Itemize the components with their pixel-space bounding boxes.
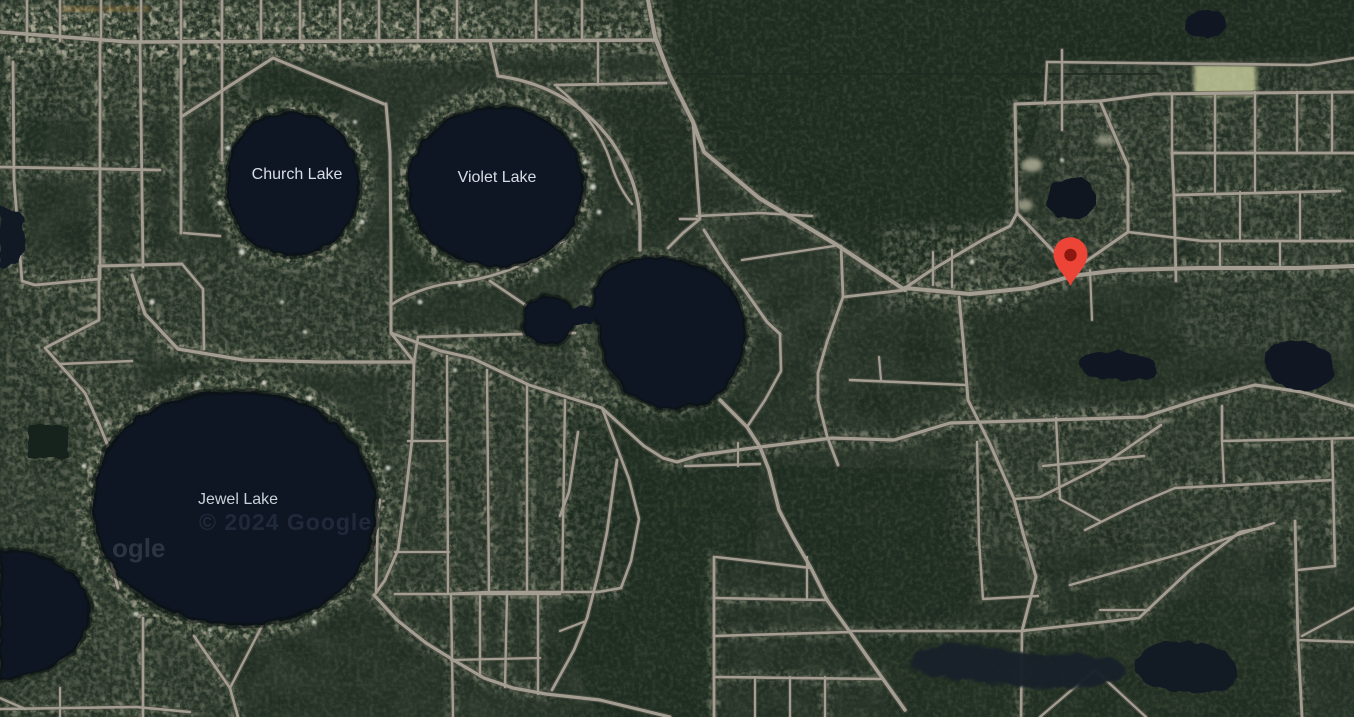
svg-text:© 2024 Google: © 2024 Google (199, 509, 372, 535)
svg-text:ogle: ogle (112, 533, 165, 563)
svg-text:Church Lake: Church Lake (252, 166, 343, 183)
svg-text:Jewel Lake: Jewel Lake (198, 491, 278, 508)
svg-text:Violet Lake: Violet Lake (458, 169, 537, 186)
